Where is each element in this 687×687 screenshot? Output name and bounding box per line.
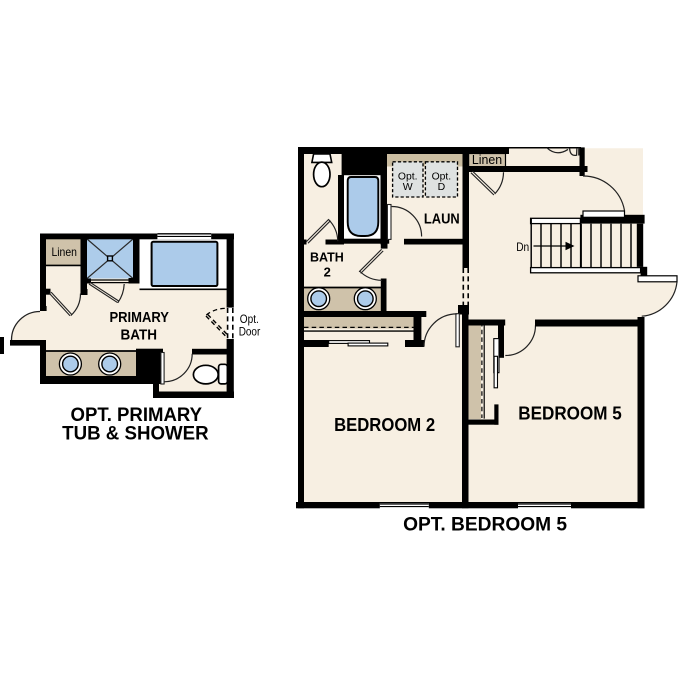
- svg-text:BATH: BATH: [310, 250, 344, 265]
- svg-text:PRIMARY: PRIMARY: [109, 309, 169, 326]
- svg-text:BEDROOM 5: BEDROOM 5: [518, 403, 622, 424]
- svg-text:Linen: Linen: [51, 245, 77, 259]
- svg-text:BEDROOM 2: BEDROOM 2: [334, 414, 435, 435]
- svg-text:BATH: BATH: [121, 327, 158, 344]
- svg-text:TUB & SHOWER: TUB & SHOWER: [62, 423, 209, 444]
- svg-text:D: D: [438, 181, 446, 193]
- svg-text:Door: Door: [239, 326, 261, 338]
- svg-text:Linen: Linen: [472, 153, 502, 167]
- svg-text:W: W: [403, 181, 413, 193]
- svg-text:Dn: Dn: [516, 240, 529, 254]
- svg-text:OPT. BEDROOM 5: OPT. BEDROOM 5: [403, 515, 567, 536]
- svg-text:LAUN: LAUN: [424, 211, 460, 227]
- svg-text:Opt.: Opt.: [240, 314, 259, 326]
- svg-text:2: 2: [324, 265, 331, 280]
